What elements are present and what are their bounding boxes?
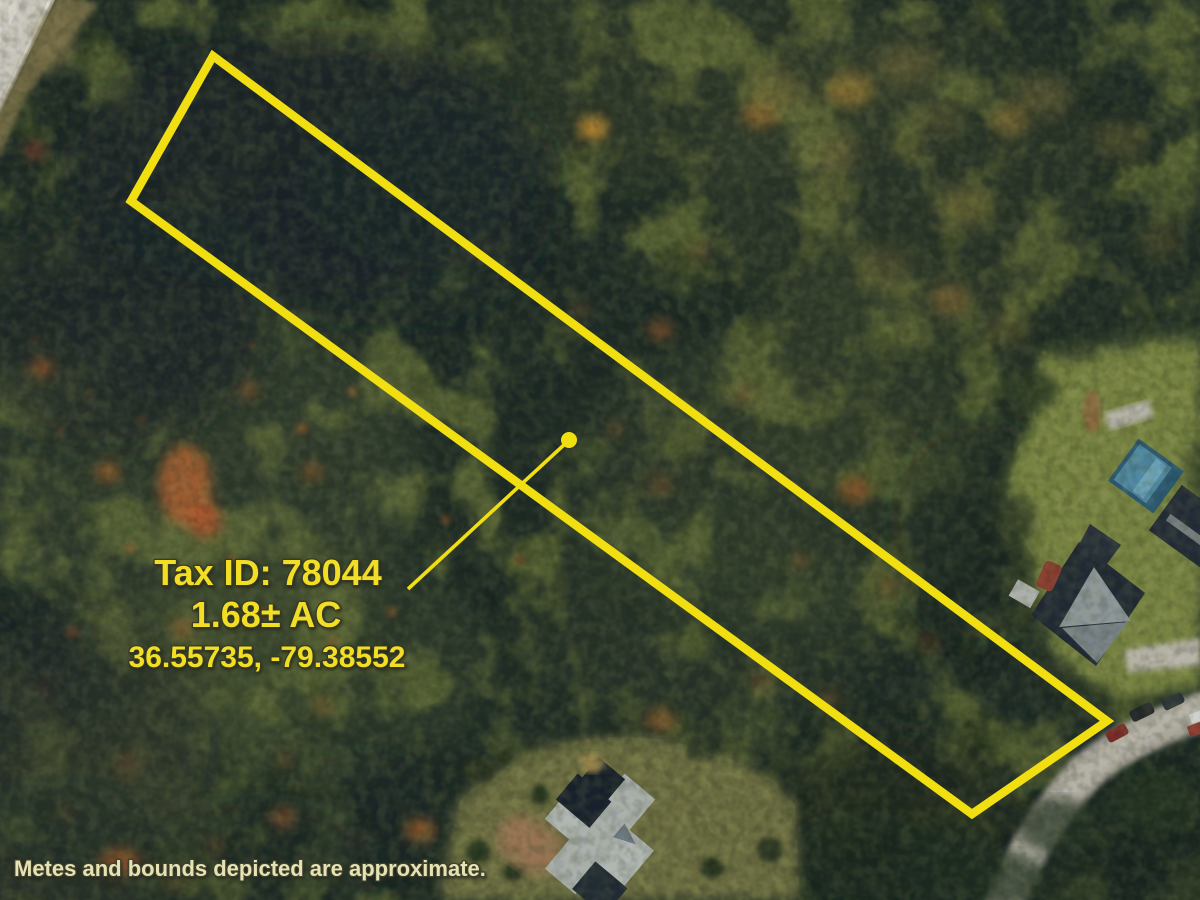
svg-text:36.55735, -79.38552: 36.55735, -79.38552 [129, 641, 406, 674]
svg-text:Tax ID: 78044: Tax ID: 78044 [154, 552, 381, 593]
svg-text:1.68± AC: 1.68± AC [191, 594, 342, 635]
svg-text:Metes and bounds depicted are: Metes and bounds depicted are approximat… [14, 856, 486, 881]
